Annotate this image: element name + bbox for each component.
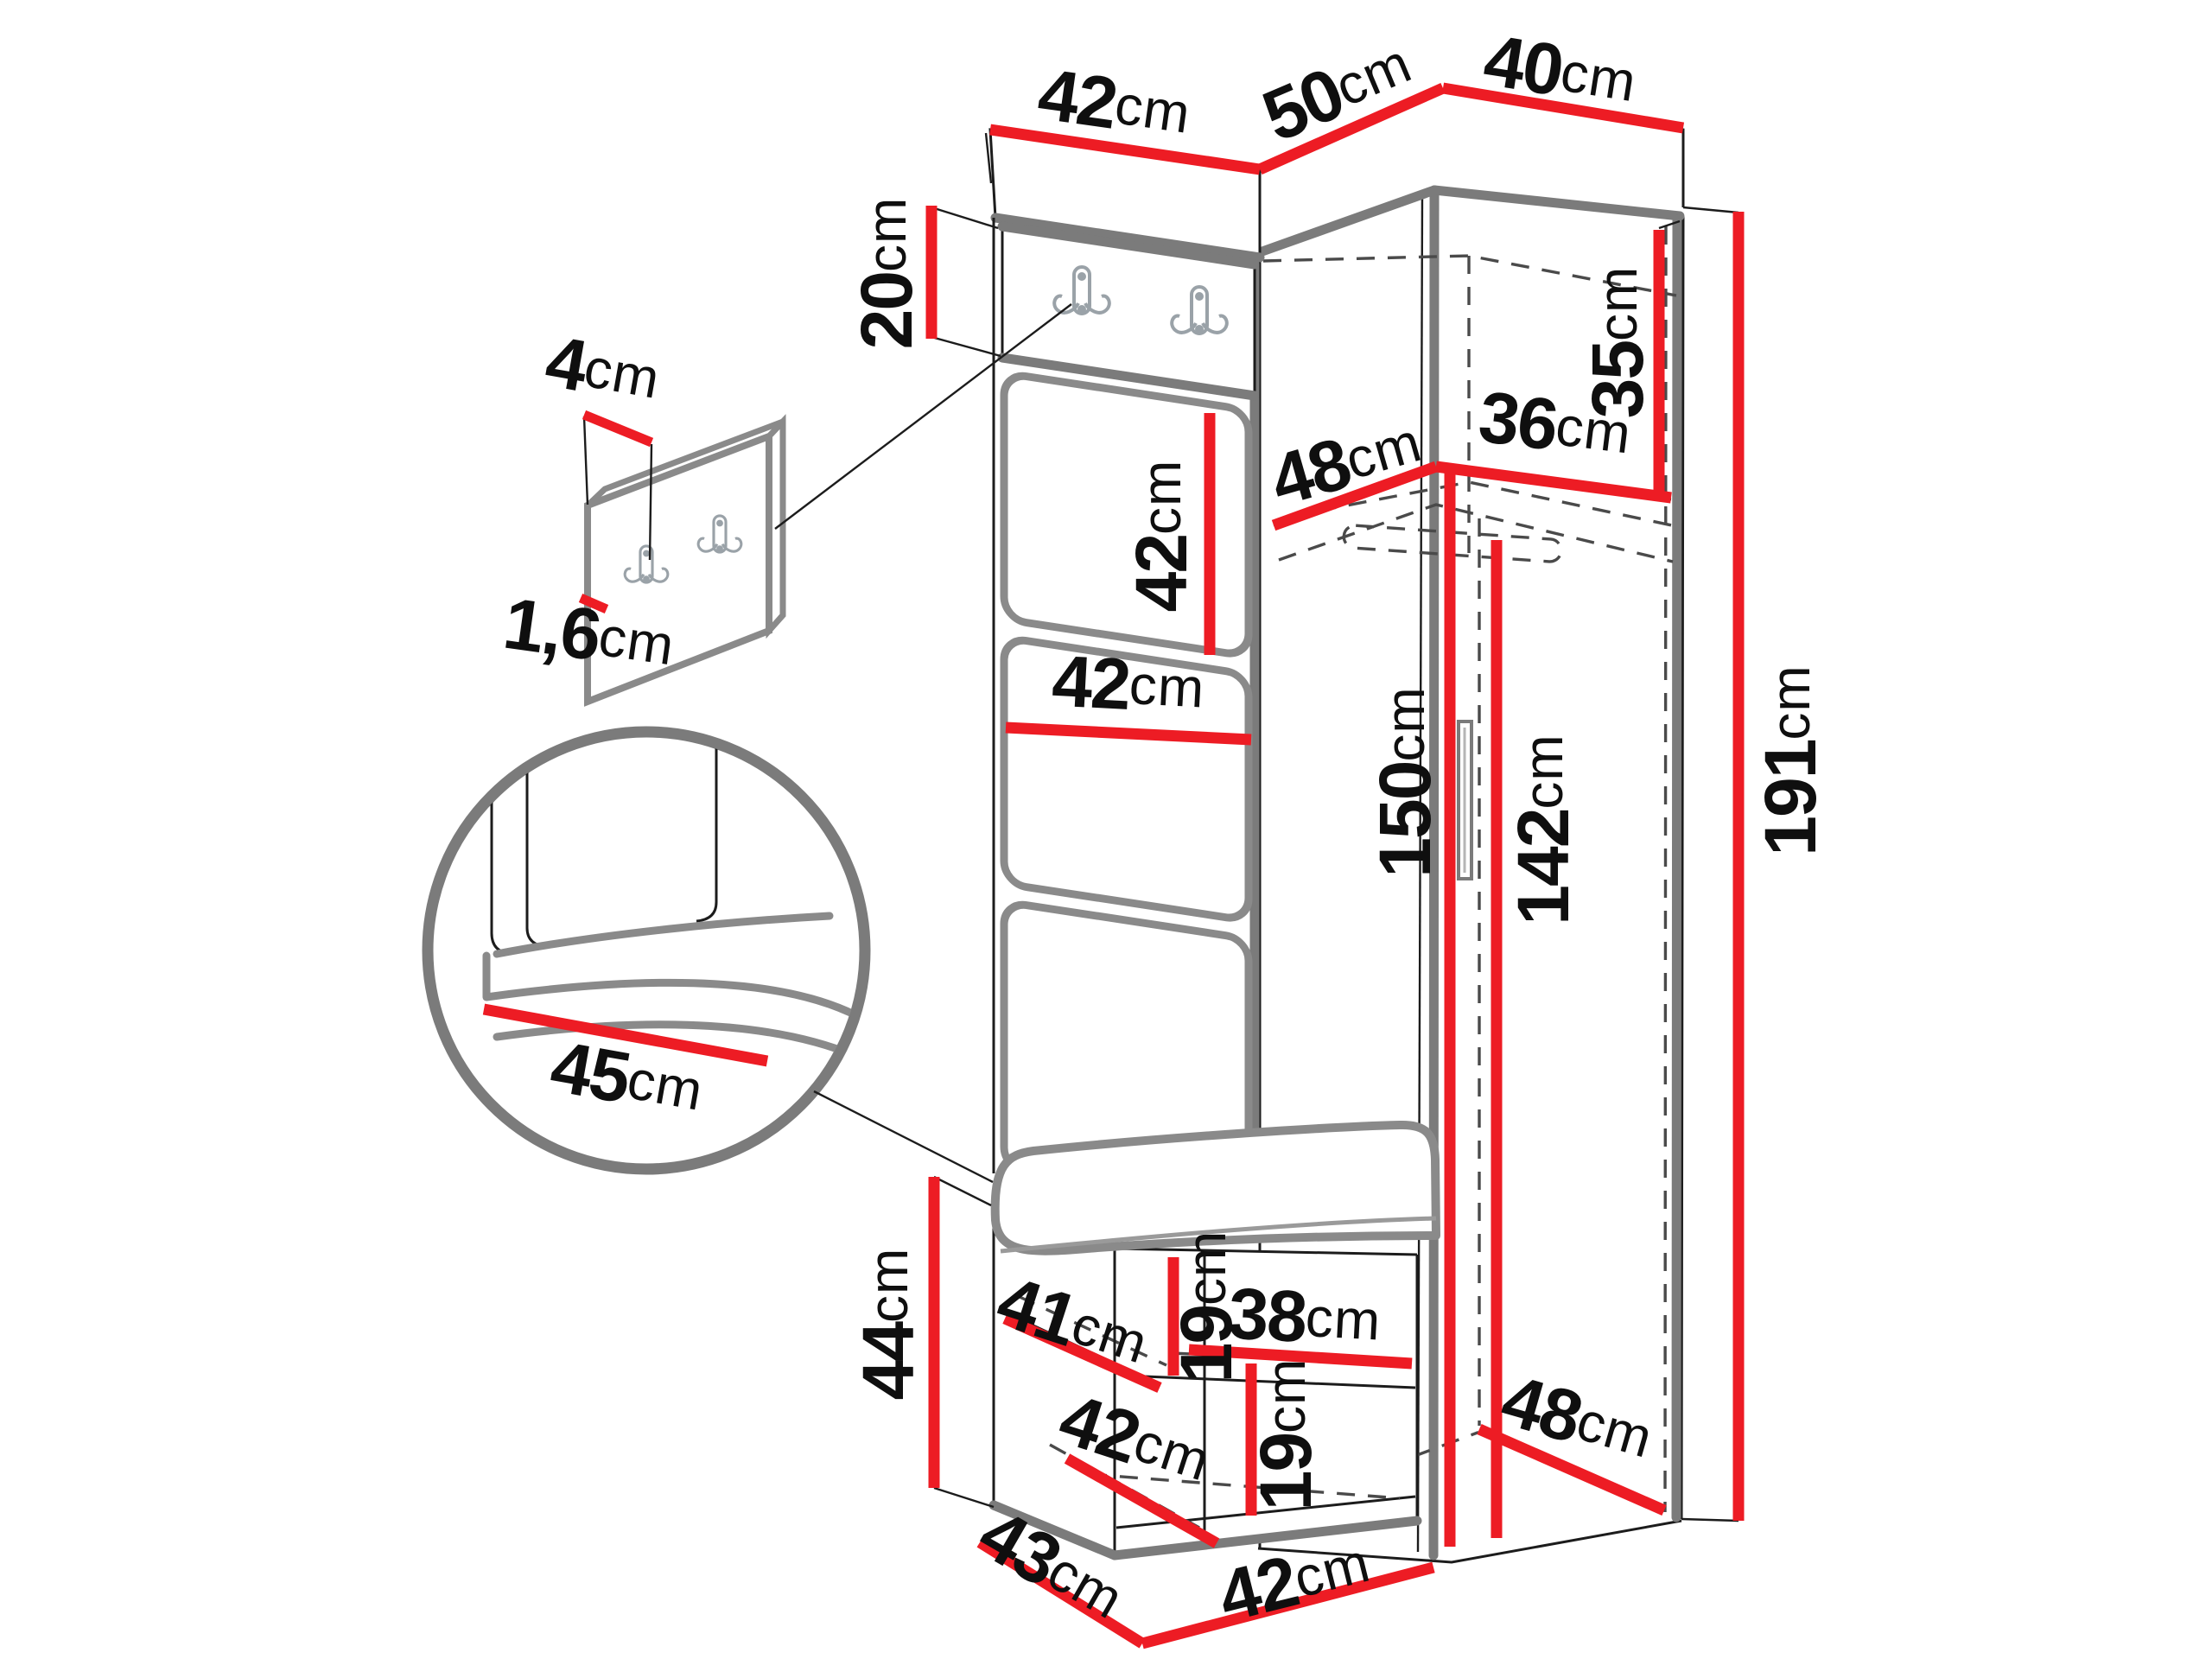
dim-label-upholstered-panel-height: 42cm	[1121, 460, 1202, 613]
dim-line-detail-panel-depth	[584, 415, 652, 442]
dim-label-bench-height: 44cm	[848, 1248, 929, 1401]
dim-label-wardrobe-floor-depth: 48cm	[1493, 1358, 1662, 1478]
dim-label-top-compartment-height: 35cm	[1577, 266, 1658, 419]
door-handle	[1459, 721, 1471, 879]
dim-label-interior-height: 150cm	[1364, 686, 1446, 877]
wardrobe-right-inner-edge	[1676, 219, 1677, 1517]
furniture-dimension-diagram-page: 42cm 50cm 40cm 20cm 4cm 1,6cm 42cm 42cm …	[0, 0, 2212, 1659]
dim-label-hook-panel-height: 20cm	[846, 197, 927, 350]
dim-label-total-height: 191cm	[1750, 664, 1831, 855]
dim-label-door-height: 142cm	[1503, 734, 1584, 925]
dim-label-top-shelf-depth: 48cm	[1262, 401, 1431, 521]
furniture-dimension-diagram: 42cm 50cm 40cm 20cm 4cm 1,6cm 42cm 42cm …	[0, 0, 2212, 1659]
dim-label-bench-lower-compartment-height: 19cm	[1245, 1358, 1326, 1511]
dim-label-detail-panel-depth: 4cm	[540, 320, 666, 419]
wardrobe-shelf-bottom-dashed	[1279, 505, 1673, 562]
wardrobe-top-near-edges	[1260, 190, 1680, 252]
detail-circle-leader-line	[814, 1091, 993, 1182]
